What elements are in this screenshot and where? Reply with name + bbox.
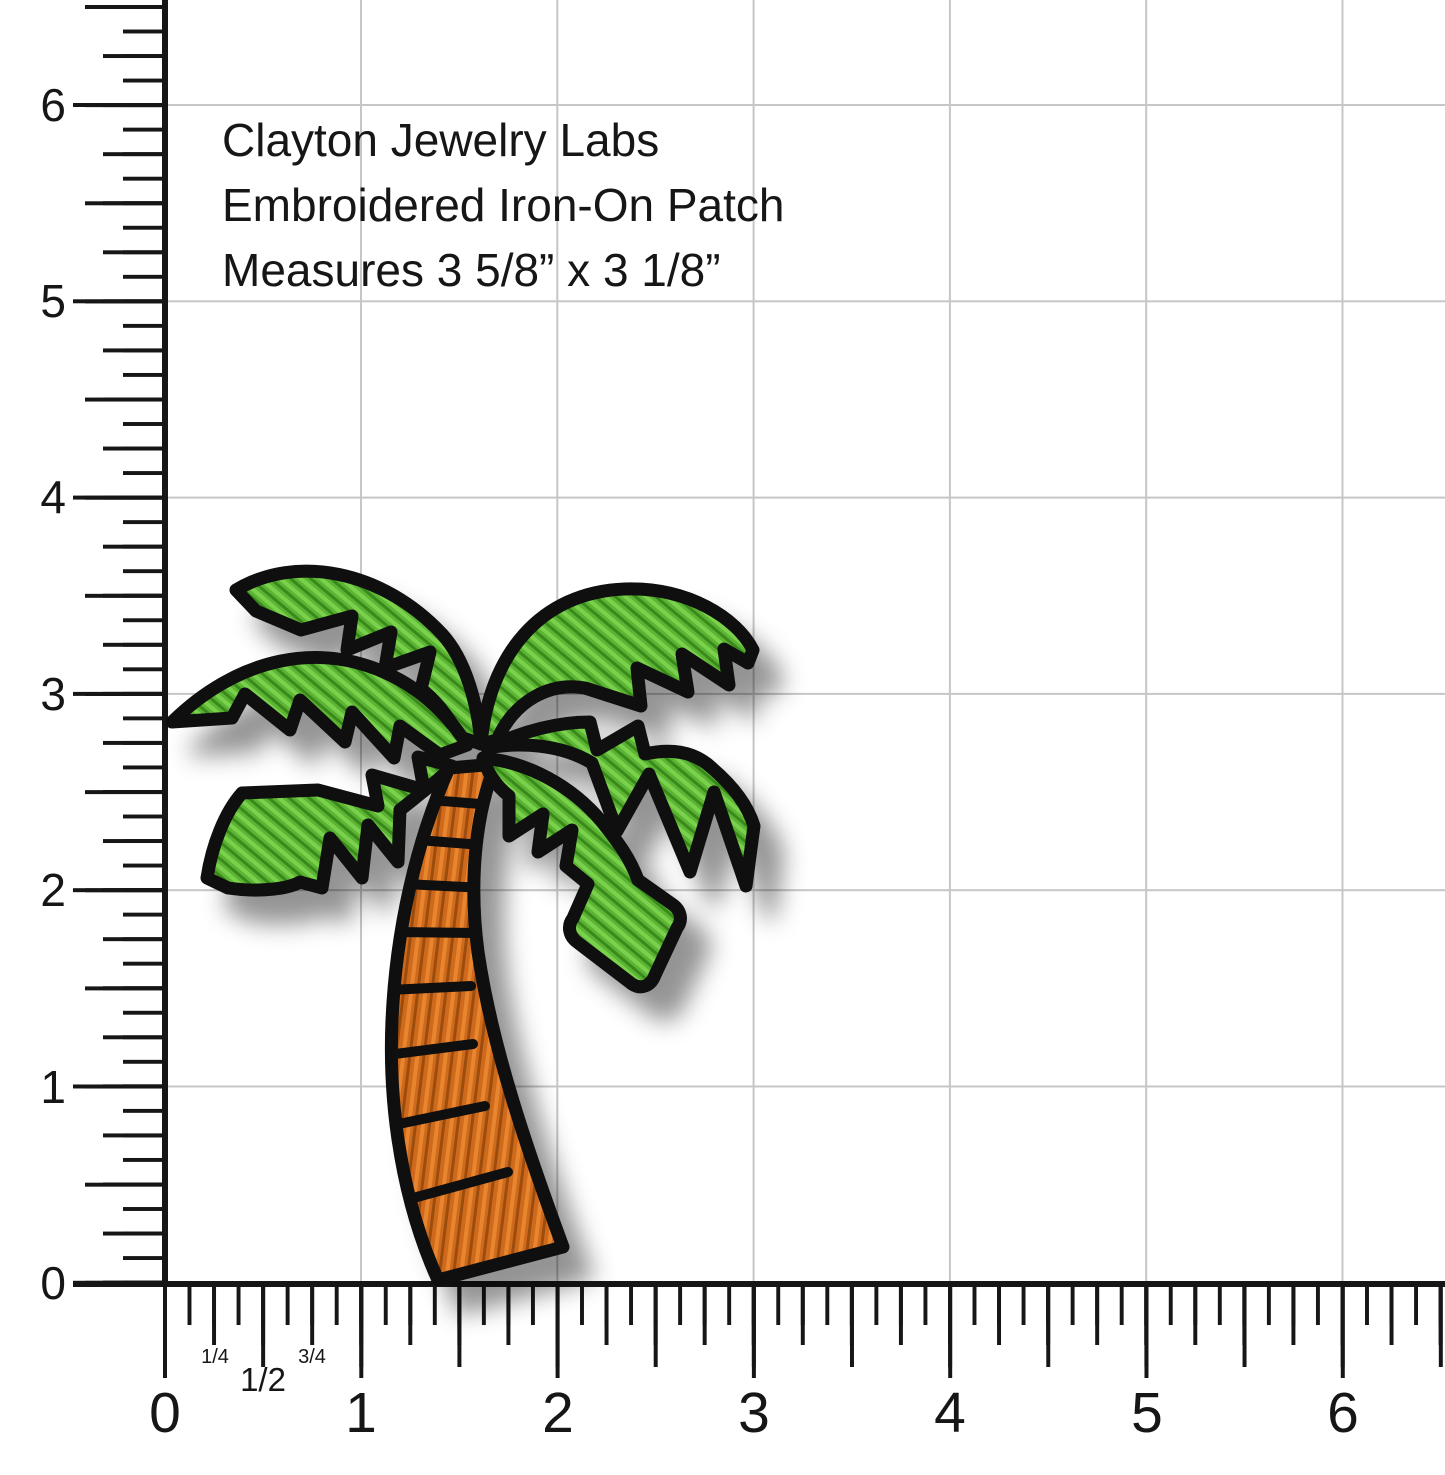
ruler-bottom-label-6: 6 <box>1303 1383 1383 1443</box>
ruler-bottom-label-0: 0 <box>125 1383 205 1443</box>
ruler-bottom-label-2: 2 <box>518 1383 598 1443</box>
measurement-board: 6 5 4 3 2 1 0 0 1 2 3 4 5 6 1/4 1/2 3/4 … <box>0 0 1445 1475</box>
ruler-left-label-4: 4 <box>0 470 66 524</box>
frond-top-right <box>481 589 753 744</box>
ruler-bottom-label-4: 4 <box>910 1383 990 1443</box>
ruler-left-label-5: 5 <box>0 274 66 328</box>
ruler-left-label-0: 0 <box>0 1256 66 1310</box>
fraction-label-three-quarter: 3/4 <box>282 1346 342 1368</box>
ruler-bottom-label-1: 1 <box>321 1383 401 1443</box>
product-measure-line: Measures 3 5/8” x 3 1/8” <box>222 238 785 303</box>
product-brand-line: Clayton Jewelry Labs <box>222 108 785 173</box>
ruler-bottom-label-5: 5 <box>1107 1383 1187 1443</box>
ruler-left-label-6: 6 <box>0 78 66 132</box>
ruler-left-label-1: 1 <box>0 1060 66 1114</box>
palm-tree-patch-image <box>150 545 850 1320</box>
product-description: Clayton Jewelry Labs Embroidered Iron-On… <box>222 108 785 303</box>
ruler-bottom-label-3: 3 <box>714 1383 794 1443</box>
product-type-line: Embroidered Iron-On Patch <box>222 173 785 238</box>
ruler-left-label-3: 3 <box>0 667 66 721</box>
ruler-left-label-2: 2 <box>0 863 66 917</box>
